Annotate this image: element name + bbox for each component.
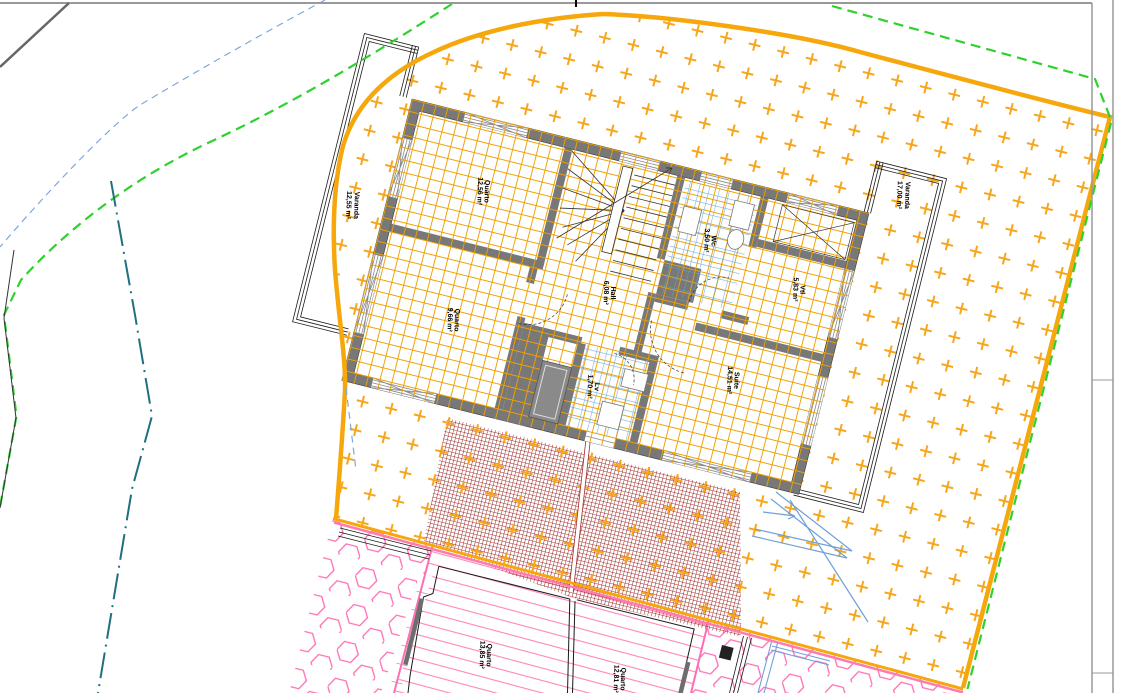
svg-text:Varanda12,55 m²: Varanda12,55 m² (344, 191, 360, 220)
svg-text:Varanda17,00 m²: Varanda17,00 m² (895, 181, 911, 210)
svg-text:Quarto13,85 m²: Quarto13,85 m² (477, 641, 492, 670)
svg-text:Quarto12,81 m²: Quarto12,81 m² (611, 665, 626, 693)
svg-text:Quarto9,66 m²: Quarto9,66 m² (445, 308, 460, 333)
svg-text:Quarto12,56 m²: Quarto12,56 m² (475, 177, 490, 206)
